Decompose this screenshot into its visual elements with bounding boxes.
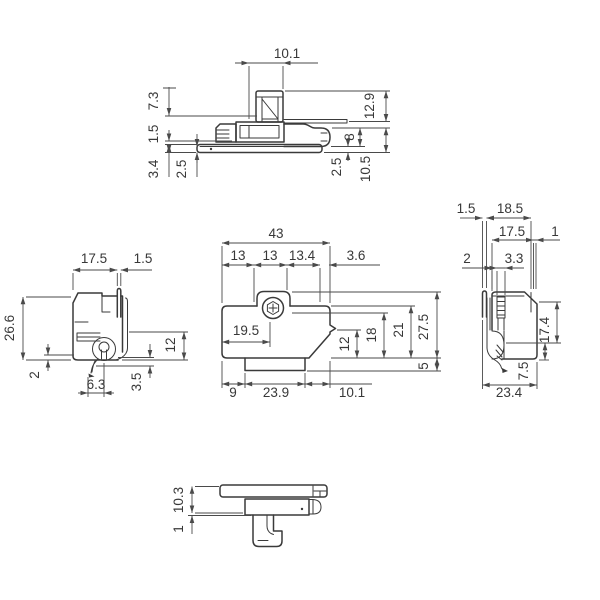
dim-left-6-3: 6.3 xyxy=(87,377,106,392)
dim-front-23-9: 23.9 xyxy=(263,385,289,400)
dim-front-18: 18 xyxy=(364,327,379,342)
right-view-screw-side xyxy=(497,297,505,330)
dim-front-9: 9 xyxy=(229,385,237,400)
dim-right-2: 2 xyxy=(463,251,471,266)
right-view-body xyxy=(492,292,537,359)
top-view-clip-outline xyxy=(256,91,283,122)
bottom-view-top-bar xyxy=(220,485,327,497)
dim-top-1-5: 1.5 xyxy=(146,125,161,144)
front-view: 43 13 13 13.4 3.6 19.5 12 18 21 27.5 5 9… xyxy=(222,226,441,400)
dim-front-21: 21 xyxy=(391,322,406,337)
dim-right-7-5: 7.5 xyxy=(516,362,531,381)
top-view-body xyxy=(284,124,330,147)
dim-front-3-6: 3.6 xyxy=(347,248,366,263)
top-view: 10.1 7.3 1.5 3.4 2.5 12.9 8 2.5 10.5 xyxy=(146,46,390,182)
dim-right-1-5: 1.5 xyxy=(457,201,476,216)
dim-front-13a: 13 xyxy=(230,248,245,263)
dim-top-8: 8 xyxy=(342,133,357,141)
dim-top-3-4: 3.4 xyxy=(146,159,161,178)
dim-front-43: 43 xyxy=(268,226,283,241)
dim-front-19-5: 19.5 xyxy=(233,323,259,338)
dim-front-13b: 13 xyxy=(262,248,277,263)
dim-right-1: 1 xyxy=(551,224,559,239)
dim-top-10-5: 10.5 xyxy=(358,156,373,182)
front-view-foot xyxy=(245,358,305,371)
dim-right-17-5: 17.5 xyxy=(499,224,525,239)
dim-left-17-5: 17.5 xyxy=(81,251,107,266)
dim-front-27-5: 27.5 xyxy=(416,314,431,340)
right-view-cam xyxy=(492,331,504,359)
dim-top-width: 10.1 xyxy=(274,46,300,61)
front-view-boss xyxy=(257,292,290,307)
bottom-view-mid-bar xyxy=(245,499,309,515)
dim-front-13-4: 13.4 xyxy=(289,248,316,263)
dim-left-26-6: 26.6 xyxy=(2,315,17,341)
drawing-canvas: 10.1 7.3 1.5 3.4 2.5 12.9 8 2.5 10.5 xyxy=(0,0,600,600)
dim-top-2-5-right: 2.5 xyxy=(329,158,344,177)
right-view: 1.5 18.5 17.5 1 2 3.3 17.4 7.5 23.4 xyxy=(457,201,561,400)
dim-front-5: 5 xyxy=(416,362,431,370)
dim-bottom-1: 1 xyxy=(171,525,186,533)
dim-top-12-9: 12.9 xyxy=(362,93,377,119)
bottom-view: 10.3 1 xyxy=(171,485,327,547)
top-view-connector xyxy=(216,124,236,142)
dim-front-12: 12 xyxy=(337,336,352,351)
dim-front-10-1: 10.1 xyxy=(339,385,365,400)
dim-right-18-5: 18.5 xyxy=(497,201,523,216)
dim-right-23-4: 23.4 xyxy=(496,385,523,400)
dim-top-2-5-left: 2.5 xyxy=(174,160,189,179)
left-view-screw-side xyxy=(93,338,116,361)
dim-left-1-5: 1.5 xyxy=(134,251,153,266)
dim-left-3-5: 3.5 xyxy=(129,373,144,392)
multiview-part-drawing: 10.1 7.3 1.5 3.4 2.5 12.9 8 2.5 10.5 xyxy=(0,0,600,600)
right-view-pin xyxy=(483,291,487,317)
left-view: 17.5 1.5 26.6 2 6.3 3.5 12 xyxy=(2,251,188,397)
dim-left-2: 2 xyxy=(27,371,42,379)
dim-right-17-4: 17.4 xyxy=(537,316,552,343)
top-view-bar xyxy=(197,145,322,153)
dim-right-3-3: 3.3 xyxy=(505,251,524,266)
left-view-pin xyxy=(117,289,121,318)
dim-bottom-10-3: 10.3 xyxy=(171,487,186,513)
top-view-strip xyxy=(284,120,347,124)
dim-top-7-3: 7.3 xyxy=(146,92,161,111)
dim-left-12: 12 xyxy=(163,337,178,352)
